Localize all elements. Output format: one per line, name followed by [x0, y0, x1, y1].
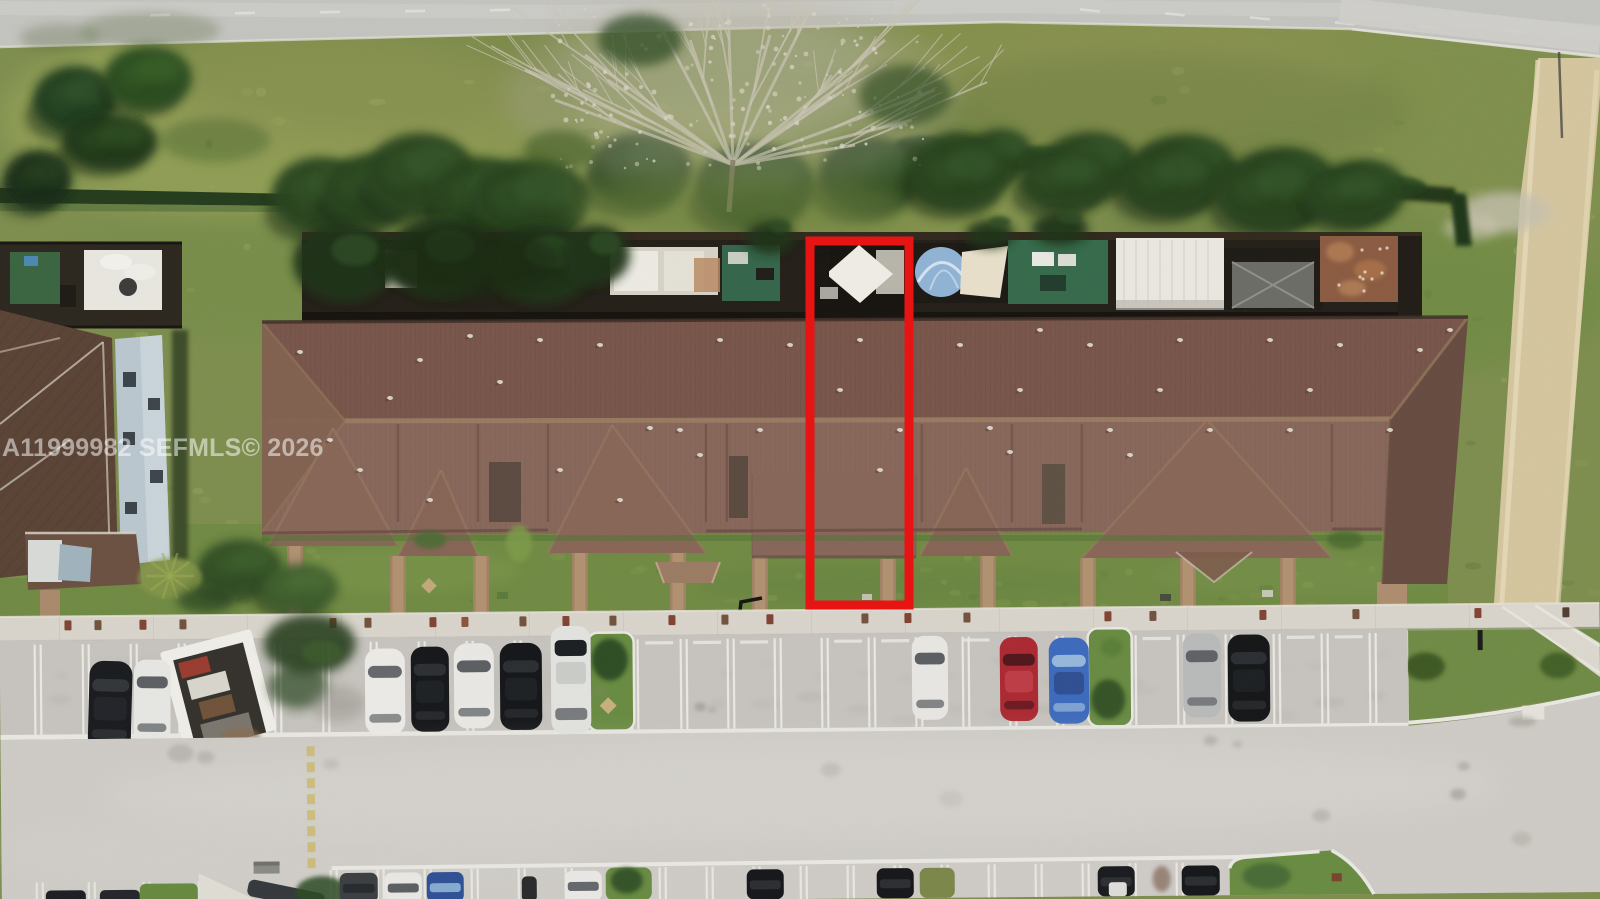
svg-text:A11999982 SEFMLS© 2026: A11999982 SEFMLS© 2026 — [2, 434, 324, 462]
